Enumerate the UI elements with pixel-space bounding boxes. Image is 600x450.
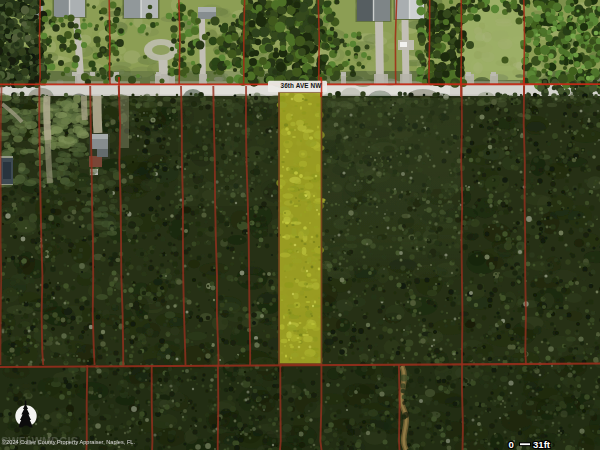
svg-text:31ft: 31ft [533,439,551,450]
svg-text:0: 0 [509,439,514,450]
svg-text:36th AVE NW: 36th AVE NW [281,82,323,89]
svg-text:©2024 Collier County Property: ©2024 Collier County Property Appraiser,… [2,438,135,445]
